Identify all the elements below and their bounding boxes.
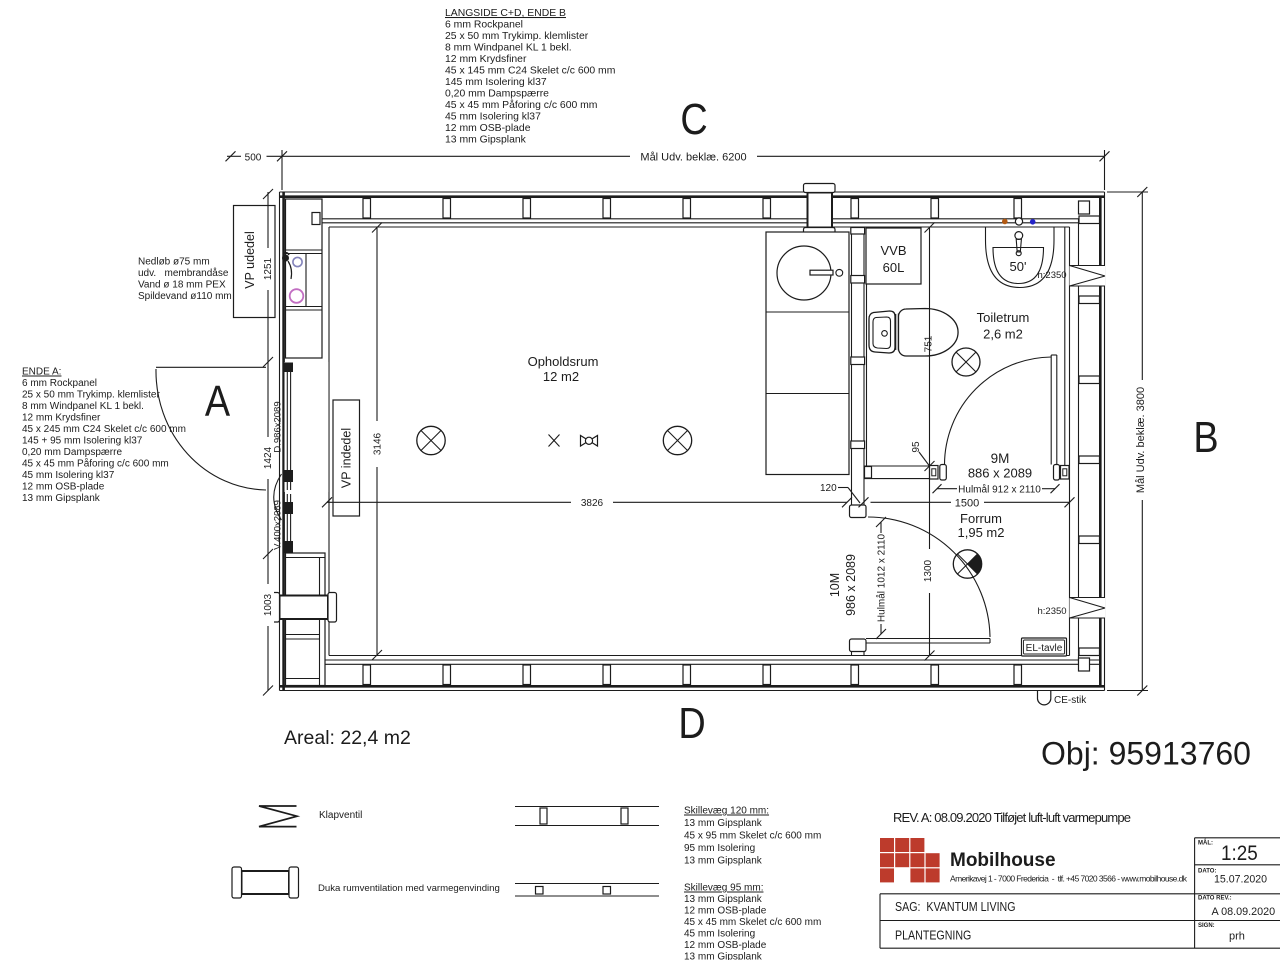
svg-text:REV. A: 08.09.2020 Tilføjet l: REV. A: 08.09.2020 Tilføjet luft-luft va…: [893, 810, 1131, 825]
svg-text:h:2350: h:2350: [1038, 606, 1067, 617]
svg-text:EL-tavle: EL-tavle: [1026, 643, 1063, 654]
svg-text:25 x 50 mm Trykimp. klemlister: 25 x 50 mm Trykimp. klemlister: [22, 390, 160, 401]
svg-text:986 x 2089: 986 x 2089: [844, 554, 858, 616]
svg-text:SAG: KVANTUM LIVING: SAG: KVANTUM LIVING: [895, 899, 1016, 914]
svg-text:1:25: 1:25: [1221, 842, 1258, 865]
svg-text:CE-stik: CE-stik: [1054, 695, 1087, 706]
svg-text:Mål Udv. beklæ. 6200: Mål Udv. beklæ. 6200: [640, 152, 746, 164]
svg-text:Nedløb ø75 mm: Nedløb ø75 mm: [138, 257, 210, 268]
svg-text:45 x 45 mm Påforing c/c 600 mm: 45 x 45 mm Påforing c/c 600 mm: [22, 458, 169, 470]
svg-text:Toiletrum: Toiletrum: [977, 310, 1030, 325]
svg-text:9M: 9M: [991, 451, 1010, 466]
svg-text:8 mm Windpanel KL 1 bekl.: 8 mm Windpanel KL 1 bekl.: [445, 43, 572, 54]
svg-text:12 m2: 12 m2: [543, 369, 579, 384]
svg-text:Areal: 22,4 m2: Areal: 22,4 m2: [284, 727, 411, 749]
svg-text:PLANTEGNING: PLANTEGNING: [895, 927, 971, 942]
svg-text:3826: 3826: [581, 498, 604, 509]
svg-text:0,20 mm Dampspærre: 0,20 mm Dampspærre: [445, 89, 549, 100]
svg-text:Mål Udv. beklæ. 3800: Mål Udv. beklæ. 3800: [1135, 387, 1147, 493]
svg-text:8 mm Windpanel KL 1 bekl.: 8 mm Windpanel KL 1 bekl.: [22, 401, 144, 412]
svg-text:Hulmål 1012 x 2110: Hulmål 1012 x 2110: [876, 533, 888, 622]
svg-text:LANGSIDE C+D, ENDE B: LANGSIDE C+D, ENDE B: [445, 8, 566, 19]
svg-text:45 mm Isolering kl37: 45 mm Isolering kl37: [445, 112, 541, 123]
svg-text:45 x 45 mm Skelet c/c 600 mm: 45 x 45 mm Skelet c/c 600 mm: [684, 917, 821, 928]
svg-text:751: 751: [924, 335, 935, 352]
svg-text:Forrum: Forrum: [960, 511, 1002, 526]
svg-text:Spildevand ø110 mm: Spildevand ø110 mm: [138, 291, 232, 302]
svg-text:DATO REV.:: DATO REV.:: [1198, 896, 1232, 902]
svg-text:886 x 2089: 886 x 2089: [968, 466, 1032, 481]
svg-text:3146: 3146: [373, 432, 384, 455]
svg-text:D.986x2089: D.986x2089: [273, 401, 284, 452]
svg-text:10M: 10M: [828, 573, 842, 597]
svg-text:1500: 1500: [955, 498, 979, 510]
svg-text:VP udedel: VP udedel: [243, 231, 257, 288]
svg-text:Opholdsrum: Opholdsrum: [528, 354, 599, 369]
svg-text:45 x 245 mm C24 Skelet c/c 600: 45 x 245 mm C24 Skelet c/c 600 mm: [22, 424, 186, 435]
svg-text:0,20 mm Dampspærre: 0,20 mm Dampspærre: [22, 447, 122, 458]
svg-text:VVB: VVB: [880, 243, 906, 258]
svg-text:Amerikavej 1 - 7000 Fredericia: Amerikavej 1 - 7000 Fredericia - tlf. +4…: [950, 874, 1188, 884]
svg-text:prh: prh: [1229, 931, 1245, 943]
svg-text:C: C: [680, 94, 707, 143]
svg-text:120: 120: [820, 483, 837, 494]
svg-text:12 mm OSB-plade: 12 mm OSB-plade: [684, 940, 767, 951]
svg-text:60L: 60L: [883, 260, 905, 275]
svg-text:Obj: 95913760: Obj: 95913760: [1041, 736, 1251, 772]
svg-text:2,6 m2: 2,6 m2: [983, 327, 1023, 342]
svg-text:Skillevæg 95 mm:: Skillevæg 95 mm:: [684, 883, 763, 894]
svg-text:13 mm Gipsplank: 13 mm Gipsplank: [684, 856, 763, 867]
svg-text:45 mm Isolering kl37: 45 mm Isolering kl37: [22, 470, 115, 481]
svg-text:MÅL:: MÅL:: [1198, 840, 1213, 847]
svg-text:ENDE A:: ENDE A:: [22, 367, 61, 378]
svg-text:SIGN:: SIGN:: [1198, 923, 1215, 929]
svg-text:50': 50': [1010, 259, 1027, 274]
svg-text:Mobilhouse: Mobilhouse: [950, 850, 1056, 871]
svg-text:1251: 1251: [263, 257, 274, 280]
svg-text:Duka rumventilation med varmeg: Duka rumventilation med varmegenvinding: [318, 883, 500, 894]
svg-text:Klapventil: Klapventil: [319, 810, 362, 821]
svg-text:13 mm Gipsplank: 13 mm Gipsplank: [684, 894, 763, 905]
svg-text:25 x 50 mm Trykimp. klemlister: 25 x 50 mm Trykimp. klemlister: [445, 31, 589, 42]
svg-text:45 mm Isolering: 45 mm Isolering: [684, 929, 755, 940]
svg-text:95: 95: [911, 441, 922, 453]
svg-text:45 x 145 mm C24 Skelet c/c 600: 45 x 145 mm C24 Skelet c/c 600 mm: [445, 66, 615, 77]
svg-text:45 x 95 mm Skelet c/c 600 mm: 45 x 95 mm Skelet c/c 600 mm: [684, 831, 821, 842]
svg-text:6 mm Rockpanel: 6 mm Rockpanel: [22, 378, 97, 389]
svg-text:V.400x2089: V.400x2089: [273, 500, 284, 550]
svg-text:45 x 45 mm Påforing c/c 600 mm: 45 x 45 mm Påforing c/c 600 mm: [445, 99, 597, 111]
svg-text:95 mm Isolering: 95 mm Isolering: [684, 843, 755, 854]
svg-text:13 mm Gipsplank: 13 mm Gipsplank: [22, 493, 101, 504]
svg-text:Skillevæg 120 mm:: Skillevæg 120 mm:: [684, 806, 769, 817]
svg-text:B: B: [1193, 412, 1218, 461]
svg-text:h:2350: h:2350: [1038, 270, 1067, 281]
svg-text:1,95 m2: 1,95 m2: [958, 525, 1005, 540]
svg-text:500: 500: [245, 152, 262, 163]
svg-text:1300: 1300: [923, 559, 934, 582]
svg-text:VP indedel: VP indedel: [340, 428, 354, 488]
svg-text:6 mm Rockpanel: 6 mm Rockpanel: [445, 20, 523, 31]
svg-text:D: D: [678, 698, 705, 747]
svg-text:A: A: [205, 376, 231, 425]
svg-text:145 mm Isolering kl37: 145 mm Isolering kl37: [445, 77, 547, 88]
svg-text:13 mm Gipsplank: 13 mm Gipsplank: [445, 135, 527, 146]
svg-text:13 mm Gipsplank: 13 mm Gipsplank: [684, 818, 763, 829]
svg-text:Hulmål 912 x 2110: Hulmål 912 x 2110: [958, 484, 1041, 496]
svg-text:12 mm OSB-plade: 12 mm OSB-plade: [22, 482, 105, 493]
svg-text:12 mm OSB-plade: 12 mm OSB-plade: [445, 123, 531, 134]
svg-text:15.07.2020: 15.07.2020: [1214, 874, 1267, 886]
svg-text:udv. membrandåse: udv. membrandåse: [138, 267, 229, 279]
svg-text:12 mm Krydsfiner: 12 mm Krydsfiner: [22, 413, 101, 424]
svg-text:A 08.09.2020: A 08.09.2020: [1212, 906, 1276, 918]
svg-text:1003: 1003: [263, 593, 274, 616]
svg-text:Vand ø 18 mm PEX: Vand ø 18 mm PEX: [138, 280, 226, 291]
svg-text:12 mm Krydsfiner: 12 mm Krydsfiner: [445, 54, 527, 65]
svg-text:145 + 95 mm Isolering kl37: 145 + 95 mm Isolering kl37: [22, 436, 143, 447]
svg-text:13 mm Gipsplank: 13 mm Gipsplank: [684, 952, 763, 960]
svg-text:12 mm OSB-plade: 12 mm OSB-plade: [684, 906, 767, 917]
